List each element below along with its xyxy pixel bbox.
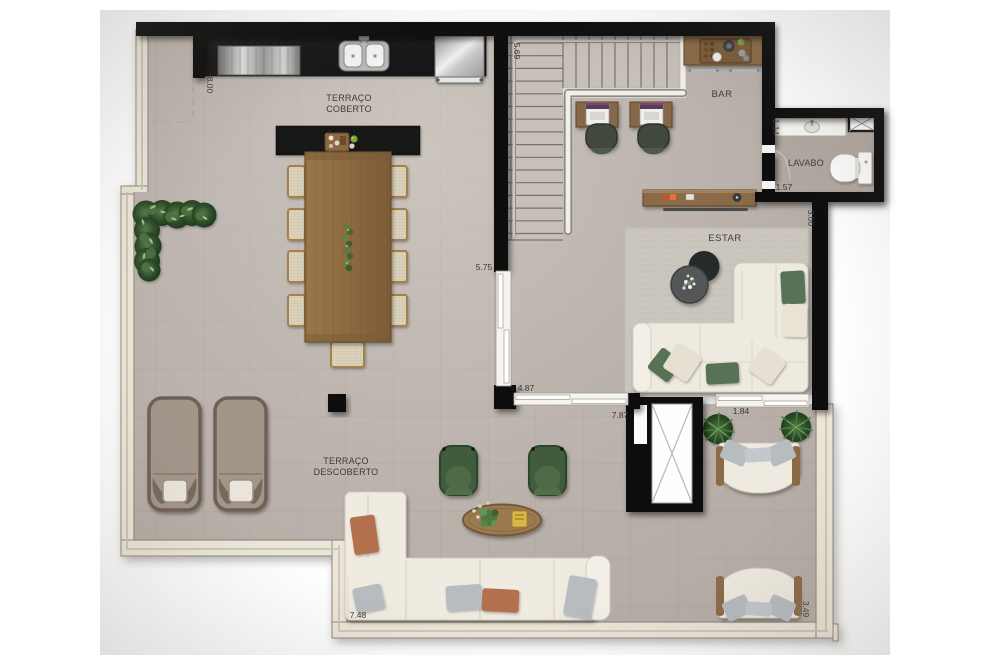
svg-text:7.87: 7.87	[612, 410, 629, 420]
svg-text:7.48: 7.48	[350, 610, 367, 620]
svg-text:1.14: 1.14	[771, 119, 781, 136]
svg-text:TERRAÇO: TERRAÇO	[326, 93, 371, 103]
svg-text:1.84: 1.84	[733, 406, 750, 416]
svg-text:4.87: 4.87	[518, 383, 535, 393]
svg-text:BAR: BAR	[711, 89, 732, 100]
svg-text:TERRAÇO: TERRAÇO	[323, 456, 368, 466]
svg-text:DESCOBERTO: DESCOBERTO	[314, 467, 379, 477]
svg-text:8.00: 8.00	[205, 77, 215, 94]
svg-text:1.57: 1.57	[776, 182, 793, 192]
svg-text:LAVABO: LAVABO	[788, 158, 824, 168]
svg-text:5.69: 5.69	[512, 43, 522, 60]
svg-text:3.00: 3.00	[806, 210, 816, 227]
svg-text:5.75: 5.75	[476, 262, 493, 272]
svg-text:ESTAR: ESTAR	[708, 233, 741, 244]
svg-text:3.49: 3.49	[801, 601, 811, 618]
svg-text:COBERTO: COBERTO	[326, 104, 372, 114]
